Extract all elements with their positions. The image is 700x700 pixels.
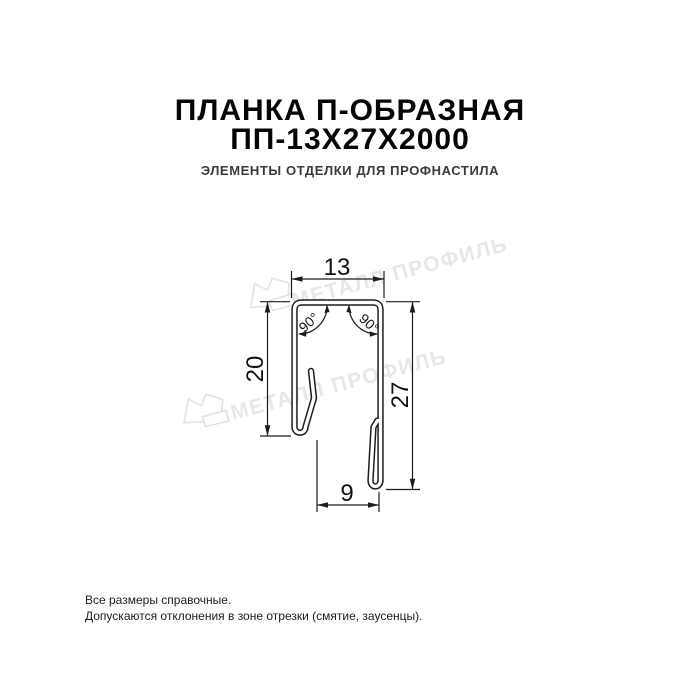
dim-label-left-height: 20	[242, 356, 269, 383]
metall-profil-logo-icon	[247, 276, 296, 314]
angle-label-left: 90°	[295, 309, 321, 335]
metall-profil-logo-icon	[181, 392, 229, 429]
footer-note-line1: Все размеры справочные.	[85, 593, 422, 609]
angle-annotation-right: 90°	[346, 305, 382, 337]
page: ПЛАНКА П-ОБРАЗНАЯ ПП-13Х27Х2000 ЭЛЕМЕНТЫ…	[0, 0, 700, 700]
dim-label-top-width: 13	[324, 254, 351, 281]
dimension-right-height: 27	[386, 302, 420, 490]
footer-note-line2: Допускаются отклонения в зоне отрезки (с…	[85, 609, 422, 625]
dim-label-bottom-width: 9	[340, 480, 353, 507]
dim-label-right-height: 27	[387, 382, 414, 409]
footer-notes: Все размеры справочные. Допускаются откл…	[85, 593, 422, 624]
